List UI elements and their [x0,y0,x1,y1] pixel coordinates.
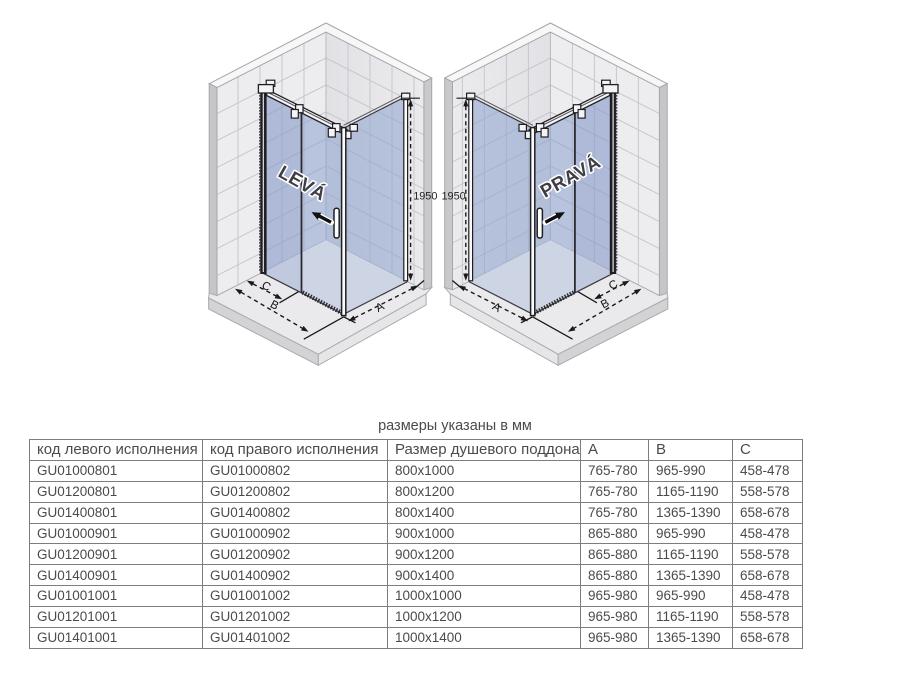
svg-text:1950: 1950 [442,190,466,202]
svg-text:1950: 1950 [413,190,437,202]
